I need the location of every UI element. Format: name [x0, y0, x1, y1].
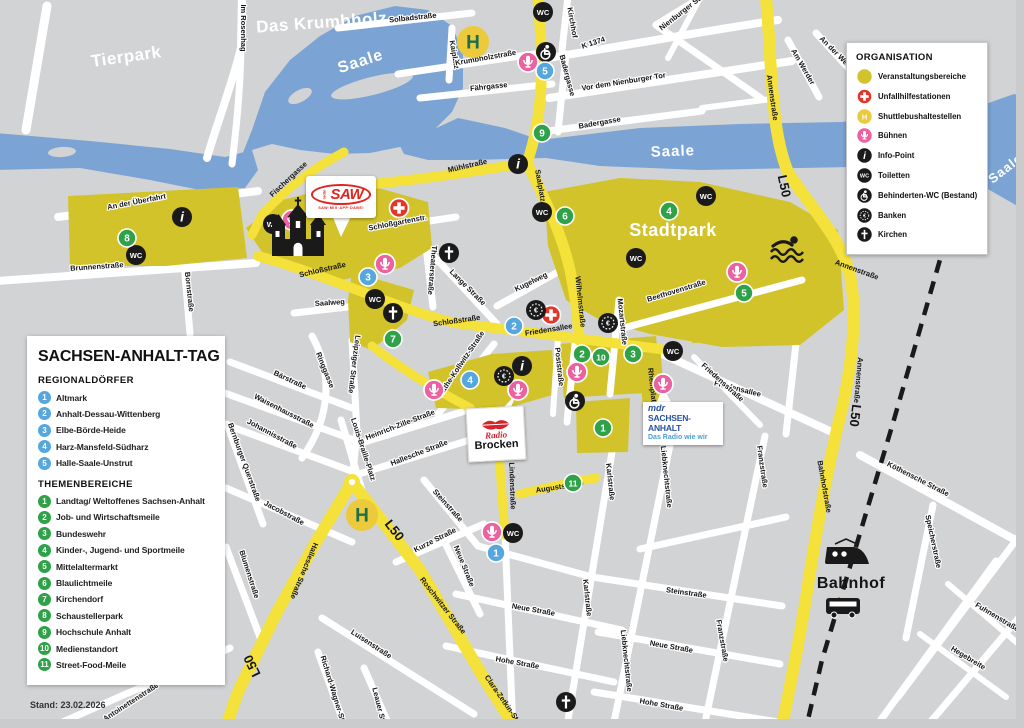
- wc-marker: WC: [626, 248, 646, 268]
- wheelchair-marker: [565, 391, 585, 411]
- junction-marker: [344, 474, 360, 490]
- bank-marker: €: [598, 313, 618, 333]
- svg-text:10: 10: [596, 352, 606, 362]
- number-badge: 10: [38, 642, 51, 655]
- wc-marker: WC: [503, 523, 523, 543]
- stage-marker: [727, 262, 747, 282]
- svg-text:4: 4: [467, 375, 473, 386]
- list-item-label: Landtag/ Weltoffenes Sachsen-Anhalt: [56, 496, 205, 506]
- info-panel: SACHSEN-ANHALT-TAG REGIONALDÖRFER 1 Altm…: [27, 336, 225, 685]
- info-marker: i: [508, 154, 528, 174]
- number-badge: 9: [38, 626, 51, 639]
- theme-marker: 7: [384, 330, 402, 348]
- area-label: Stadtpark: [629, 220, 717, 240]
- legend-item: H Shuttlebushaltestellen: [856, 108, 979, 125]
- brocken-name-label: Brocken: [474, 438, 519, 452]
- mdr-brand-label: mdr: [648, 404, 718, 413]
- list-item-label: Street-Food-Meile: [56, 660, 126, 670]
- number-badge: 3: [38, 527, 51, 540]
- list-item-label: Mittelaltermarkt: [56, 562, 118, 572]
- bank-marker: €: [526, 300, 546, 320]
- regionaldoerfer-list: 1 Altmark 2 Anhalt-Dessau-Wittenberg 3 E…: [38, 391, 215, 470]
- church-marker: [556, 692, 576, 712]
- list-item: 2 Anhalt-Dessau-Wittenberg: [38, 407, 215, 420]
- regional-marker: 2: [505, 317, 523, 335]
- shuttle-marker: H: [346, 499, 378, 531]
- list-item: 8 Schaustellerpark: [38, 609, 215, 622]
- number-badge: 4: [38, 440, 51, 453]
- svg-text:3: 3: [365, 272, 371, 283]
- number-badge: 3: [38, 424, 51, 437]
- bank-marker: €: [494, 366, 514, 386]
- list-item: 9 Hochschule Anhalt: [38, 626, 215, 639]
- list-item-label: Job- und Wirtschaftsmeile: [56, 512, 160, 522]
- regional-marker: 3: [359, 268, 377, 286]
- svg-text:H: H: [355, 506, 369, 527]
- wc-marker: WC: [365, 289, 385, 309]
- list-item-label: Kirchendorf: [56, 594, 103, 604]
- svg-text:H: H: [466, 33, 480, 54]
- list-item: 4 Harz-Mansfeld-Südharz: [38, 440, 215, 453]
- svg-text:€: €: [534, 308, 538, 315]
- river-label: Saale: [650, 142, 695, 161]
- info-point-icon: i: [856, 147, 873, 164]
- wc-marker: WC: [696, 186, 716, 206]
- number-badge: 6: [38, 577, 51, 590]
- legend-item: WC Toiletten: [856, 167, 979, 184]
- wc-marker: WC: [663, 341, 683, 361]
- bank-icon: €: [856, 207, 873, 224]
- list-item-label: Elbe-Börde-Heide: [56, 425, 126, 435]
- church-marker: [439, 243, 459, 263]
- saw-tagline: SAW·MIX·APP·DABEI: [318, 206, 364, 210]
- shuttle-stop-icon: H: [856, 108, 873, 125]
- theme-marker: 1: [594, 419, 612, 437]
- wc-marker: WC: [532, 202, 552, 222]
- number-badge: 1: [38, 391, 51, 404]
- svg-text:€: €: [606, 321, 610, 328]
- number-badge: 5: [38, 560, 51, 573]
- svg-text:7: 7: [390, 334, 396, 345]
- shuttle-marker: H: [457, 26, 489, 58]
- theme-marker: 8: [118, 229, 136, 247]
- theme-marker: 5: [735, 284, 753, 302]
- mdr-logo: mdr SACHSEN-ANHALT Das Radio wie wir: [643, 402, 723, 445]
- stage-icon: [856, 127, 873, 144]
- svg-text:WC: WC: [130, 251, 143, 260]
- list-item: 3 Bundeswehr: [38, 527, 215, 540]
- legend-item: € Banken: [856, 207, 979, 224]
- theme-marker: 3: [624, 345, 642, 363]
- theme-marker: 2: [573, 345, 591, 363]
- svg-text:WC: WC: [700, 192, 713, 201]
- svg-text:6: 6: [562, 211, 568, 222]
- event-area-icon: [856, 68, 873, 85]
- svg-text:1: 1: [600, 423, 606, 434]
- svg-text:H: H: [862, 112, 868, 121]
- church-marker: [383, 303, 403, 323]
- first-aid-icon: [856, 88, 873, 105]
- mdr-claim-label: Das Radio wie wir: [648, 433, 718, 442]
- list-item-label: Halle-Saale-Unstrut: [56, 458, 133, 468]
- svg-text:WC: WC: [667, 347, 680, 356]
- list-item-label: Kinder-, Jugend- und Sportmeile: [56, 545, 185, 555]
- svg-text:€: €: [502, 374, 506, 381]
- svg-text:€: €: [863, 213, 866, 219]
- theme-marker: 9: [533, 124, 551, 142]
- list-item-label: Altmark: [56, 393, 87, 403]
- list-item: 1 Landtag/ Weltoffenes Sachsen-Anhalt: [38, 495, 215, 508]
- legend-item: Unfallhilfestationen: [856, 88, 979, 105]
- legend-item: Kirchen: [856, 226, 979, 243]
- saw-oval: radio SAW: [311, 184, 371, 205]
- street-label: Im Rosenhag: [239, 4, 248, 52]
- svg-text:5: 5: [542, 66, 548, 77]
- svg-text:WC: WC: [860, 174, 869, 180]
- list-item-label: Harz-Mansfeld-Südharz: [56, 442, 148, 452]
- svg-text:WC: WC: [507, 529, 520, 538]
- svg-text:WC: WC: [536, 208, 549, 217]
- svg-text:3: 3: [630, 349, 636, 360]
- stage-marker: [567, 362, 587, 382]
- theme-marker: 4: [660, 202, 678, 220]
- list-item-label: Schaustellerpark: [56, 611, 123, 621]
- legend-box: ORGANISATION Veranstaltungsbereiche Unfa…: [846, 42, 988, 255]
- list-item: 11 Street-Food-Meile: [38, 658, 215, 671]
- legend-item: i Info-Point: [856, 147, 979, 164]
- list-item-label: Blaulichtmeile: [56, 578, 112, 588]
- svg-text:WC: WC: [630, 254, 643, 263]
- svg-text:WC: WC: [537, 8, 550, 17]
- section-heading-themenbereiche: THEMENBEREICHE: [38, 479, 215, 490]
- page-title: SACHSEN-ANHALT-TAG: [38, 348, 215, 366]
- number-badge: 2: [38, 407, 51, 420]
- stage-marker: [653, 374, 673, 394]
- legend-item: Behinderten-WC (Bestand): [856, 187, 979, 204]
- svg-text:i: i: [863, 151, 866, 162]
- section-heading-regionaldoerfer: REGIONALDÖRFER: [38, 375, 215, 386]
- list-item-label: Bundeswehr: [56, 529, 106, 539]
- svg-text:2: 2: [579, 349, 585, 360]
- themenbereiche-list: 1 Landtag/ Weltoffenes Sachsen-Anhalt 2 …: [38, 495, 215, 672]
- wc-marker: WC: [533, 2, 553, 22]
- theme-marker: 6: [556, 207, 574, 225]
- number-badge: 1: [38, 495, 51, 508]
- list-item: 4 Kinder-, Jugend- und Sportmeile: [38, 544, 215, 557]
- aid-marker: [390, 199, 409, 218]
- list-item: 3 Elbe-Börde-Heide: [38, 424, 215, 437]
- stage-marker: [424, 380, 444, 400]
- event-map: Im RosenhagSolbadstraßeKaiplatzKrumbholz…: [0, 0, 1024, 728]
- wc-icon: WC: [856, 167, 873, 184]
- list-item: 7 Kirchendorf: [38, 593, 215, 606]
- theme-marker: 10: [592, 348, 610, 366]
- road-ref-label: L50: [847, 404, 865, 428]
- street-label: Lindenstraße: [507, 462, 518, 509]
- wc-marker: WC: [126, 245, 146, 265]
- svg-text:11: 11: [569, 478, 578, 488]
- legend-title: ORGANISATION: [856, 52, 979, 63]
- radio-saw-logo: radio SAW SAW·MIX·APP·DABEI: [306, 176, 376, 218]
- info-marker: i: [172, 207, 192, 227]
- stage-marker: [482, 522, 502, 542]
- svg-text:5: 5: [741, 288, 747, 299]
- list-item: 2 Job- und Wirtschaftsmeile: [38, 511, 215, 524]
- number-badge: 5: [38, 457, 51, 470]
- stage-marker: [518, 52, 538, 72]
- svg-text:4: 4: [666, 206, 672, 217]
- svg-text:8: 8: [124, 233, 130, 244]
- list-item: 1 Altmark: [38, 391, 215, 404]
- svg-text:1: 1: [493, 548, 499, 559]
- list-item: 5 Halle-Saale-Unstrut: [38, 457, 215, 470]
- number-badge: 2: [38, 511, 51, 524]
- church-icon: [856, 226, 873, 243]
- legend-item: Bühnen: [856, 127, 979, 144]
- mdr-region-label: SACHSEN-ANHALT: [648, 413, 718, 433]
- accessible-wc-icon: [856, 187, 873, 204]
- list-item: 5 Mittelaltermarkt: [38, 560, 215, 573]
- number-badge: 8: [38, 609, 51, 622]
- regional-marker: 1: [487, 544, 505, 562]
- number-badge: 4: [38, 544, 51, 557]
- list-item-label: Anhalt-Dessau-Wittenberg: [56, 409, 160, 419]
- list-item: 6 Blaulichtmeile: [38, 577, 215, 590]
- map-date-stamp: Stand: 23.02.2026: [30, 700, 106, 710]
- svg-text:WC: WC: [369, 295, 382, 304]
- list-item: 10 Medienstandort: [38, 642, 215, 655]
- number-badge: 11: [38, 658, 51, 671]
- list-item-label: Hochschule Anhalt: [56, 627, 131, 637]
- regional-marker: 5: [536, 62, 554, 80]
- wheelchair-marker: [536, 42, 556, 62]
- regional-marker: 4: [461, 371, 479, 389]
- list-item-label: Medienstandort: [56, 644, 118, 654]
- legend-item: Veranstaltungsbereiche: [856, 68, 979, 85]
- radio-brocken-logo: Radio Brocken: [466, 406, 527, 463]
- saw-name-label: SAW: [331, 186, 364, 203]
- area-label: Bahnhof: [817, 575, 886, 592]
- saw-radio-label: radio: [321, 190, 326, 200]
- stage-marker: [375, 254, 395, 274]
- theme-marker: 11: [564, 474, 582, 492]
- svg-text:9: 9: [539, 128, 545, 139]
- info-marker: i: [512, 356, 532, 376]
- svg-text:2: 2: [511, 321, 517, 332]
- number-badge: 7: [38, 593, 51, 606]
